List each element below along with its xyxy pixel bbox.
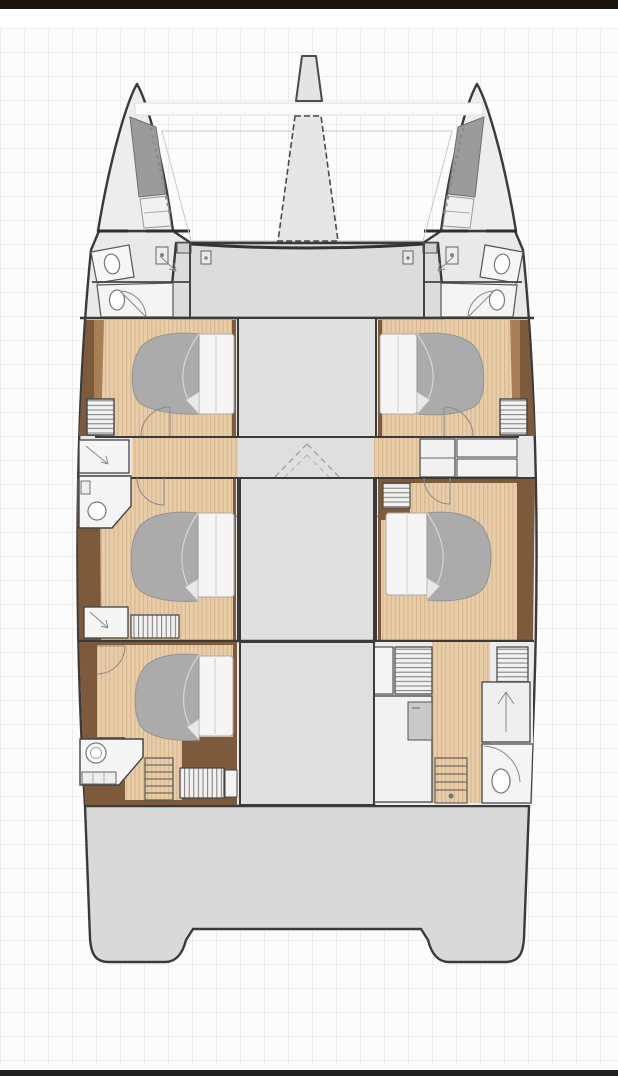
toilet-icon [88,502,106,520]
toilet-icon [492,769,510,793]
drawer-unit [131,615,179,638]
mast-column [278,116,338,241]
shower-aft-of-mid-port [84,607,128,638]
top-letterbox-bar [0,0,618,9]
wardrobe-shelves [395,647,432,694]
bottom-letterbox-bar [0,1070,618,1076]
stair-landing-room [482,682,530,742]
catamaran-floor-plan [0,0,618,1076]
galley-aft-starboard [374,642,533,805]
stairs-aft-port [145,758,173,800]
wardrobe-shelves [500,399,527,435]
screenshot-stage [0,0,618,1076]
cabin-fore-starboard [378,320,535,436]
bowsprit [296,56,322,101]
bed-fore-starboard [380,333,484,415]
trampoline-port [162,131,295,241]
saloon-forward [238,318,376,437]
trampoline-starboard [319,131,452,241]
deck-hatch-port [201,251,211,264]
saloon-main [240,478,374,641]
wardrobe-shelves [497,647,528,683]
cabin-aft-port [79,642,237,805]
shower-mid-port [79,440,129,473]
sink-icon [86,743,106,763]
cabin-mid-port [77,476,236,640]
cabin-fore-port [79,320,236,436]
drawer-unit [180,768,224,798]
galley-center [240,642,374,805]
wardrobe-shelves [383,483,410,508]
cabin-mid-starboard [378,478,535,640]
head-aft-starboard [482,744,533,803]
stern-platform [85,806,529,962]
deck-hatch-starboard [403,251,413,264]
bed-mid-starboard [386,512,491,601]
bed-mid-port [131,512,234,601]
wardrobe-shelves [87,399,114,435]
forward-crossbeam [135,103,483,115]
corridor-floor [432,642,490,803]
bed-fore-port [132,333,234,414]
utility-room [374,696,432,802]
foredeck [169,243,445,318]
bed-aft-port [135,654,233,740]
